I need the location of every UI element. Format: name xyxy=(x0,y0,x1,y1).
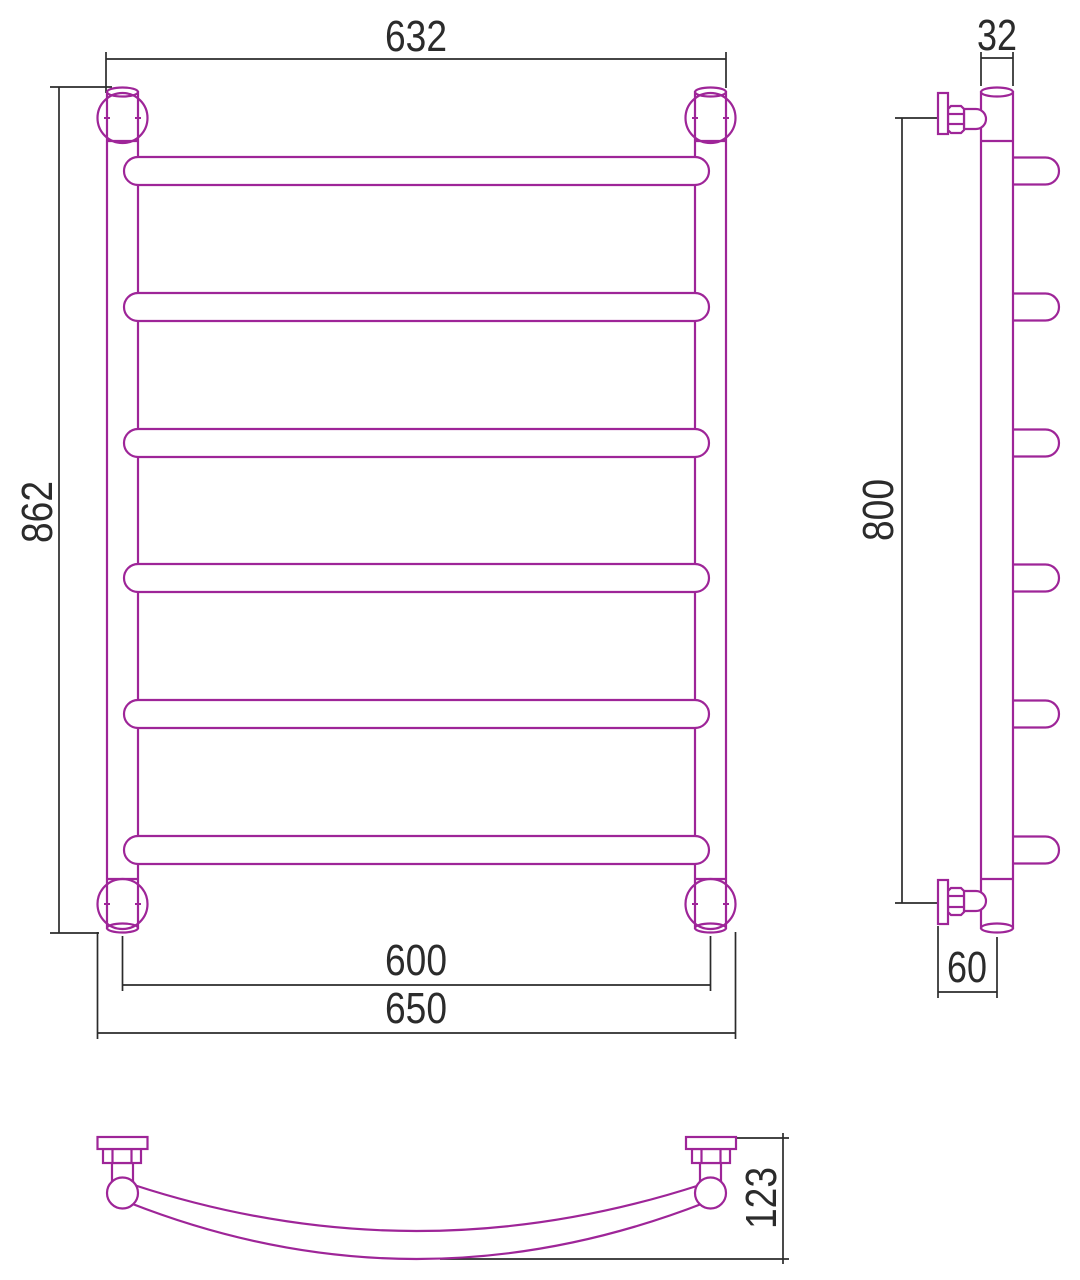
curved-rail-arc xyxy=(130,1185,704,1259)
rail xyxy=(124,157,709,185)
mount-bracket-circles xyxy=(98,93,736,929)
hex-nut xyxy=(948,888,964,915)
dim-60-label: 60 xyxy=(947,943,987,992)
hex-nut xyxy=(692,1149,730,1163)
bottom-wall-bracket xyxy=(938,880,986,924)
drawing-canvas: 632 862 600 650 32 800 60 123 xyxy=(0,0,1080,1280)
left-tube xyxy=(107,88,138,933)
wall-plate xyxy=(938,880,948,924)
tube-cross-section xyxy=(695,1178,726,1209)
top-view-left-fitting xyxy=(98,1137,148,1209)
bracket-stem xyxy=(964,891,986,911)
tube-cross-section xyxy=(107,1178,138,1209)
side-view xyxy=(938,88,1059,933)
right-tube xyxy=(695,88,726,933)
rails xyxy=(124,157,709,864)
bracket-stem xyxy=(964,109,986,129)
rail xyxy=(124,836,709,864)
rail xyxy=(124,700,709,728)
rail xyxy=(124,293,709,321)
front-view xyxy=(98,88,736,933)
rail xyxy=(124,429,709,457)
top-view xyxy=(98,1137,737,1259)
wall-plate xyxy=(938,93,948,134)
technical-drawing: 632 862 600 650 32 800 60 123 xyxy=(0,0,1080,1280)
hex-nut xyxy=(103,1149,141,1163)
dimension-annotations xyxy=(50,52,1013,1264)
dim-123-label: 123 xyxy=(737,1167,786,1229)
dim-862-label: 862 xyxy=(13,481,62,543)
dim-600-label: 600 xyxy=(385,936,447,985)
dim-632-label: 632 xyxy=(385,12,447,61)
side-tube xyxy=(981,88,1013,933)
top-wall-bracket xyxy=(938,93,986,134)
dim-800-label: 800 xyxy=(854,479,903,541)
rail xyxy=(124,564,709,592)
hex-nut xyxy=(948,106,964,133)
wall-plate xyxy=(98,1137,148,1149)
dim-32-label: 32 xyxy=(977,11,1017,60)
wall-plate xyxy=(686,1137,736,1149)
dimension-labels: 632 862 600 650 32 800 60 123 xyxy=(13,11,1017,1229)
dim-650-label: 650 xyxy=(385,984,447,1033)
top-view-right-fitting xyxy=(686,1137,736,1209)
